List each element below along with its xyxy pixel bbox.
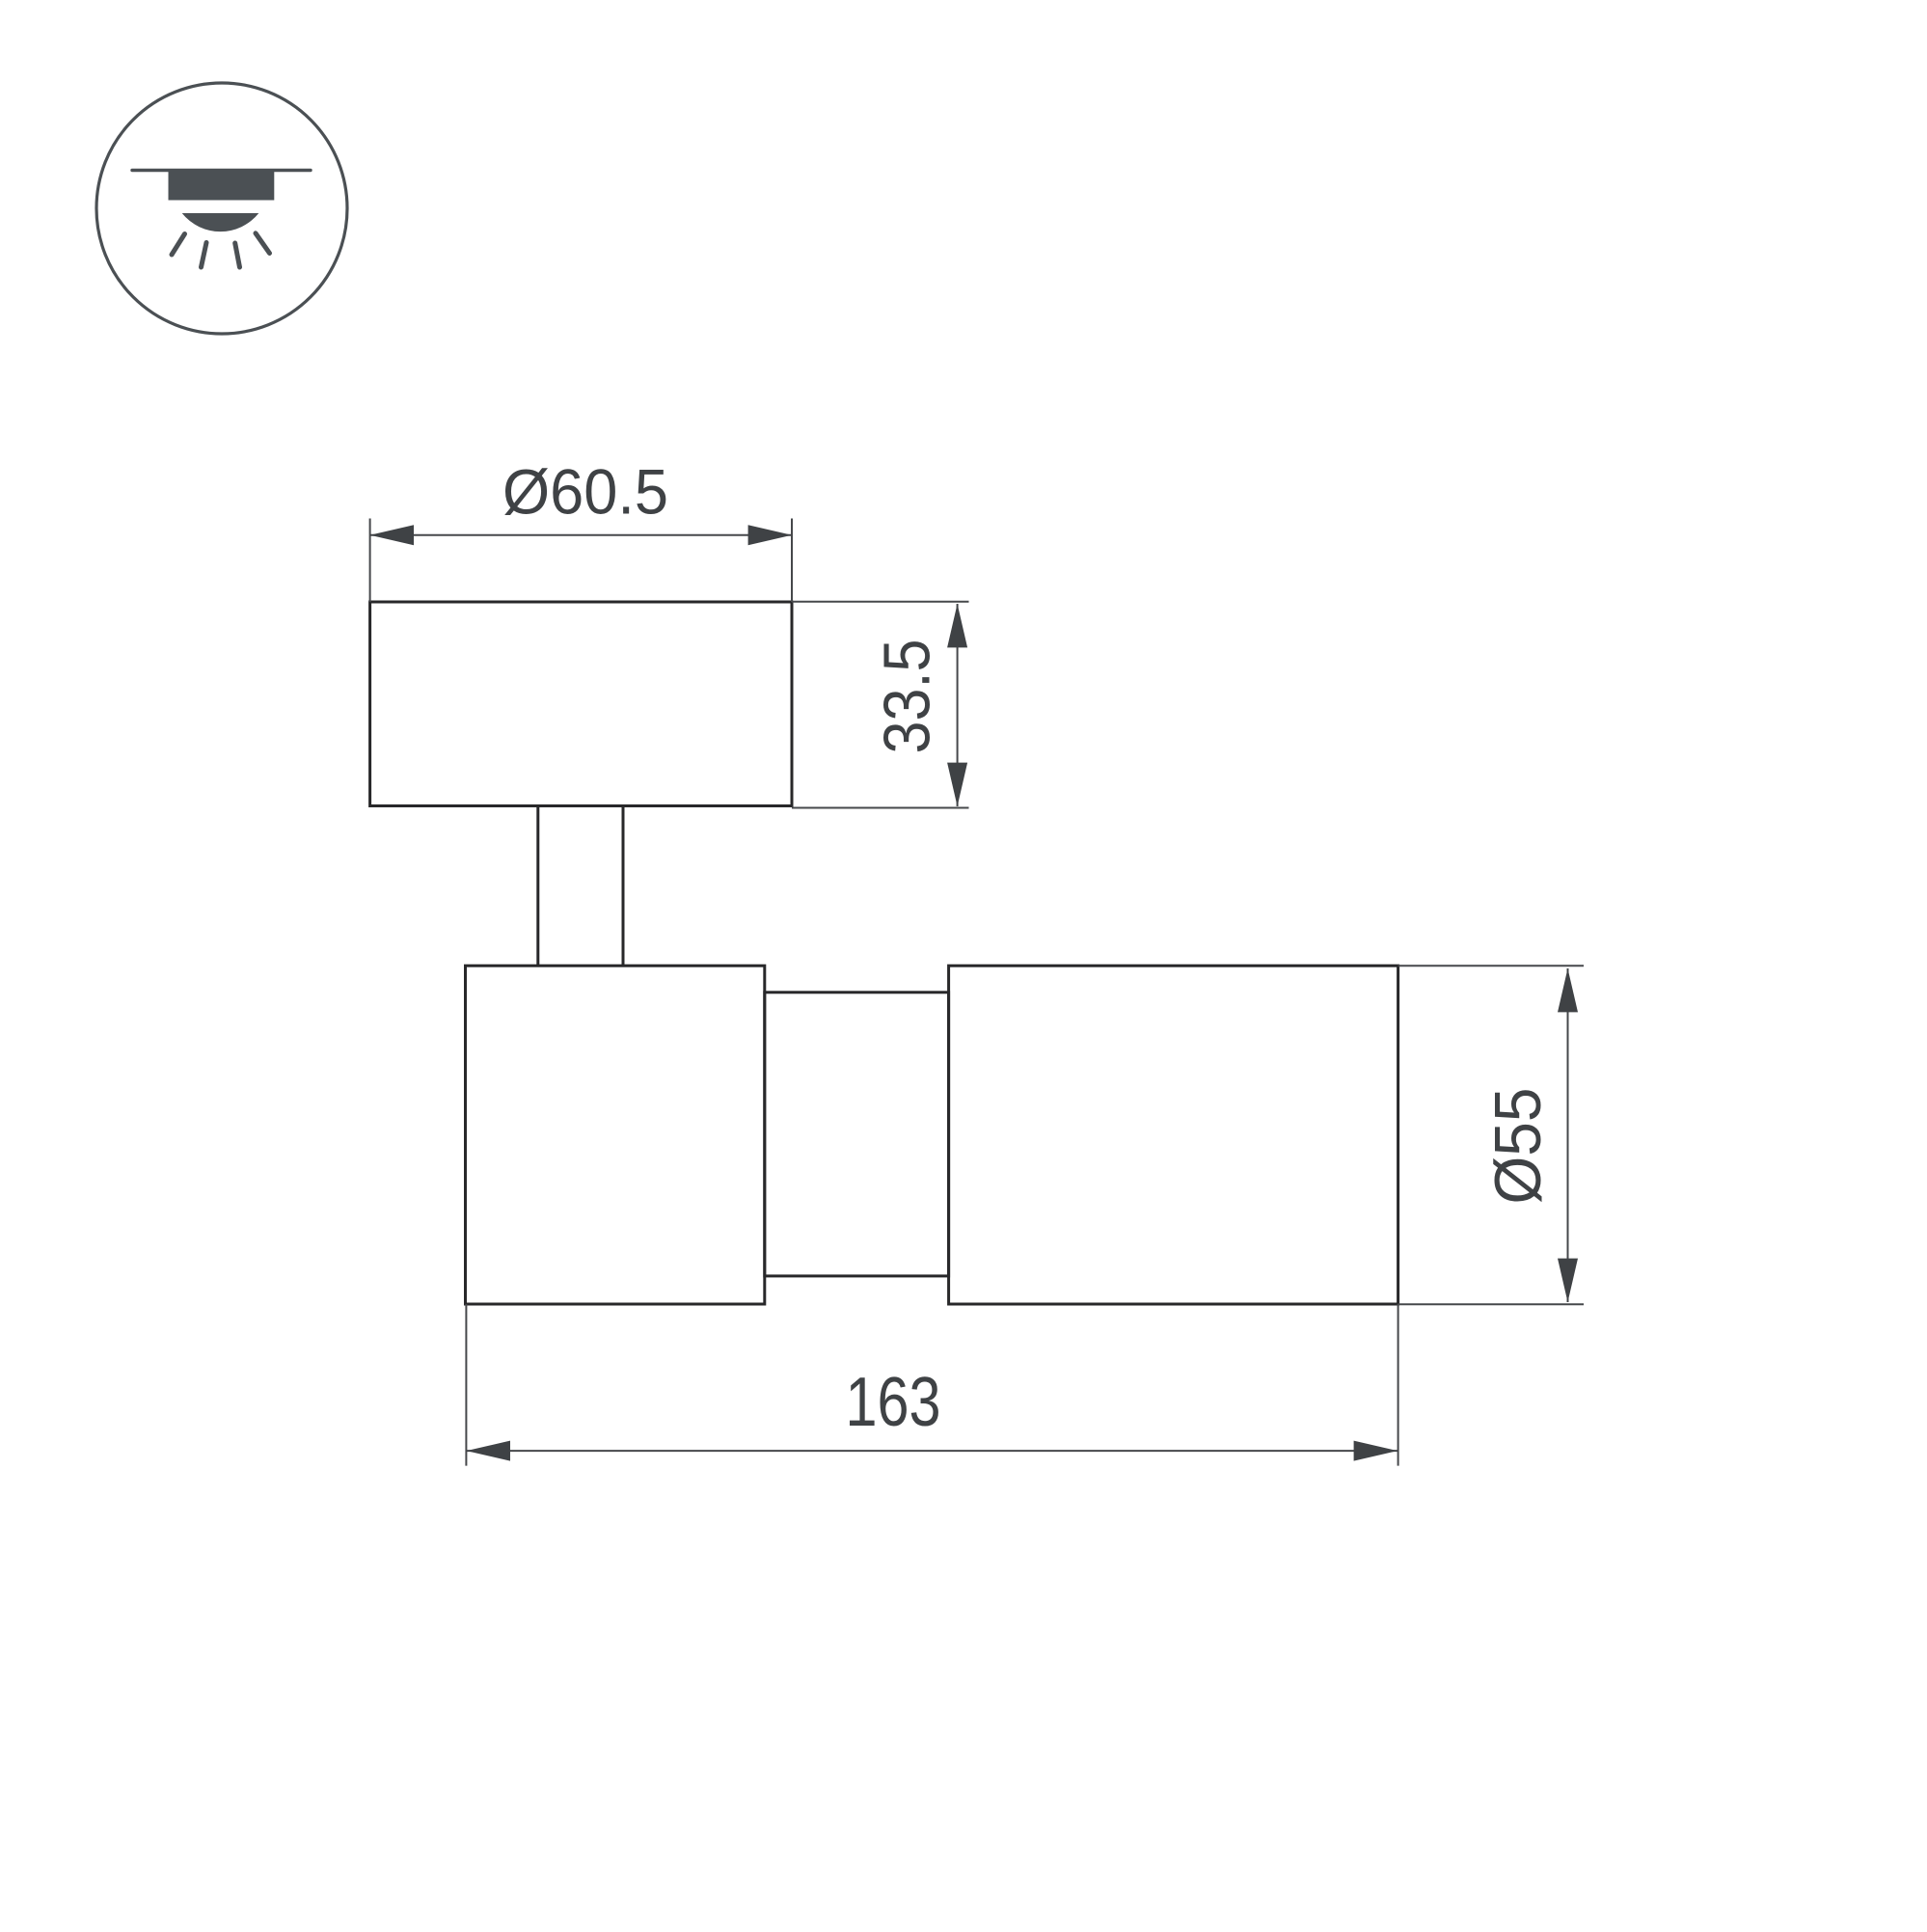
svg-text:Ø60.5: Ø60.5 (502, 456, 668, 528)
svg-text:33.5: 33.5 (870, 639, 943, 754)
svg-text:163: 163 (846, 1364, 941, 1441)
svg-text:Ø55: Ø55 (1481, 1088, 1555, 1205)
